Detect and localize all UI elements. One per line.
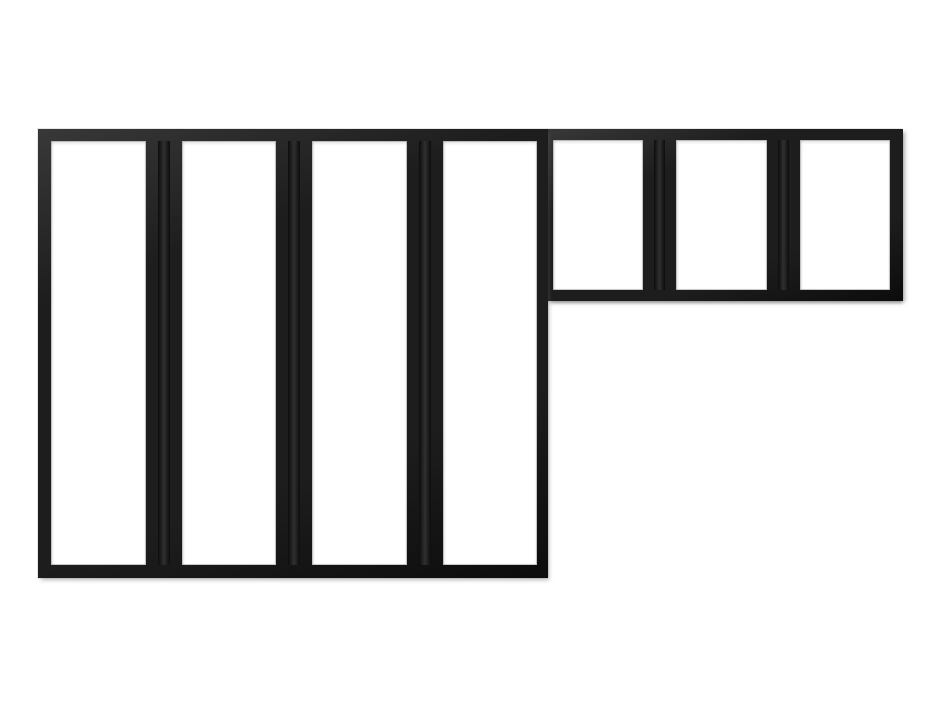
glass-pane	[182, 141, 277, 565]
frame-mullion	[158, 141, 170, 565]
frame-mullion	[778, 140, 789, 290]
glass-pane	[312, 141, 407, 565]
tall-frame-section	[38, 129, 548, 578]
frame-mullion	[288, 141, 300, 565]
product-photo-canvas	[0, 0, 940, 706]
short-frame-section	[548, 129, 903, 301]
glass-pane	[676, 140, 766, 290]
glass-pane	[51, 141, 146, 565]
frame-mullion	[419, 141, 431, 565]
glass-pane	[553, 140, 643, 290]
glass-pane	[443, 141, 538, 565]
frame-mullion	[654, 140, 665, 290]
glass-pane	[800, 140, 890, 290]
